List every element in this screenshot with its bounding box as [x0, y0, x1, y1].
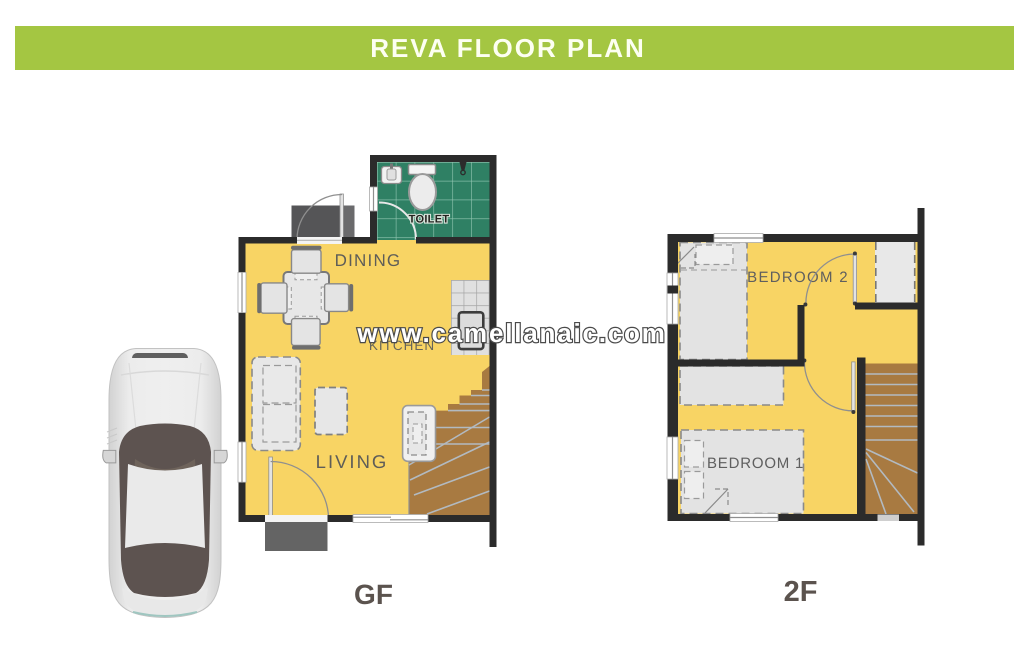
svg-text:TOILET: TOILET: [409, 214, 450, 226]
svg-text:REVA FLOOR PLAN: REVA FLOOR PLAN: [370, 33, 646, 63]
svg-text:GF: GF: [354, 579, 393, 610]
svg-text:www.camellanaic.com: www.camellanaic.com: [356, 318, 666, 348]
svg-text:LIVING: LIVING: [316, 451, 389, 472]
svg-text:BEDROOM 2: BEDROOM 2: [747, 269, 849, 286]
svg-text:2F: 2F: [784, 576, 818, 608]
svg-text:DINING: DINING: [335, 251, 402, 270]
svg-text:BEDROOM 1: BEDROOM 1: [707, 455, 804, 472]
